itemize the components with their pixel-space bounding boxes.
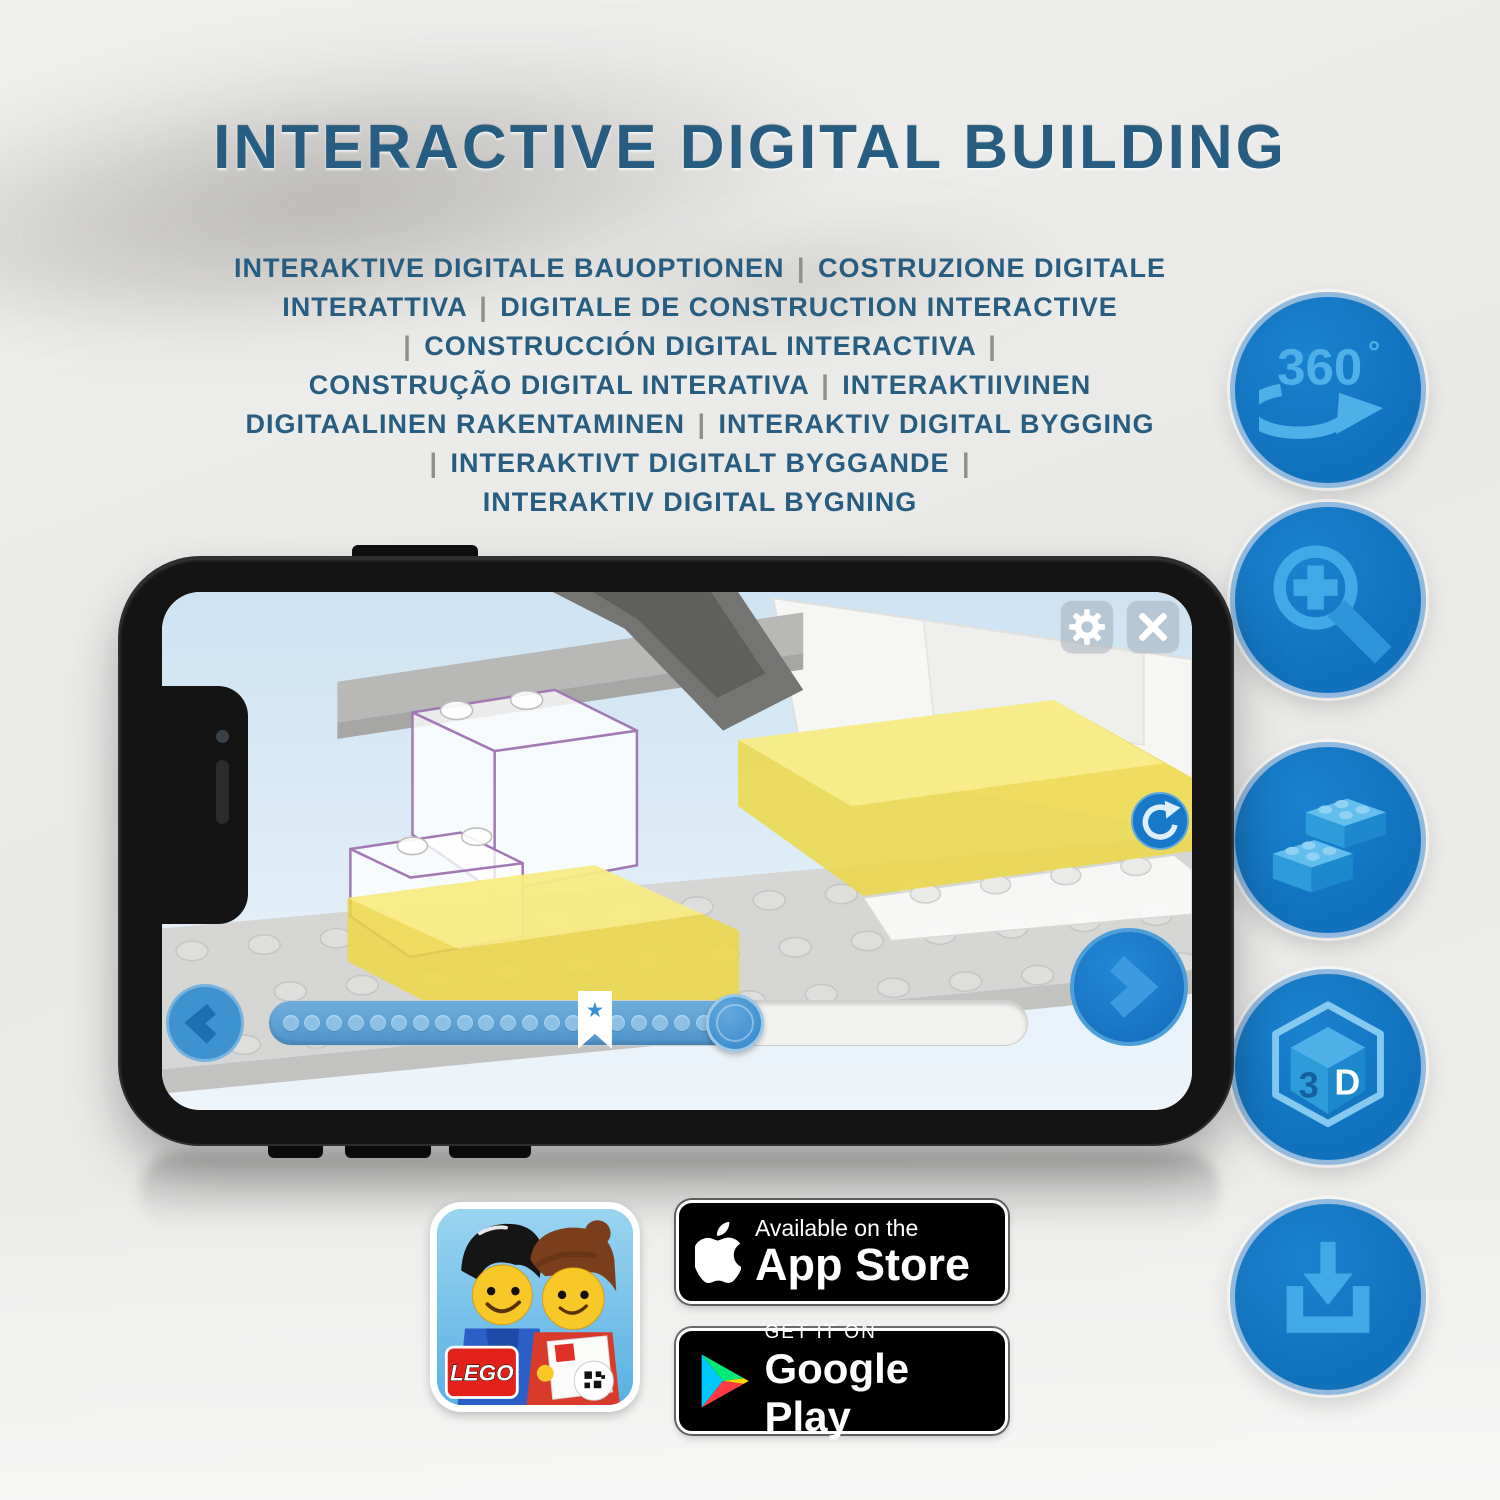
progress-dot [544,1015,560,1031]
progress-dot [652,1015,668,1031]
feature-bricks [1230,742,1426,938]
progress-dot [457,1015,473,1031]
subtitle-line: INTERAKTIV DIGITAL BYGNING [150,483,1250,522]
zoom-in-icon [1259,531,1397,669]
feature-download [1230,1199,1426,1395]
camera-dot [216,730,229,743]
progress-dot [391,1015,407,1031]
svg-text:D: D [1334,1063,1360,1103]
progress-dot [522,1015,538,1031]
progress-dot [348,1015,364,1031]
download-icon [1259,1228,1397,1366]
subtitle-line: INTERAKTIVE DIGITALE BAUOPTIONEN | COSTR… [150,249,1250,288]
progress-dot [370,1015,386,1031]
progress-dot [478,1015,494,1031]
page-title: INTERACTIVE DIGITAL BUILDING [0,112,1500,183]
progress-dot [304,1015,320,1031]
google-play-name: Google Play [764,1345,1005,1441]
svg-text:3: 3 [1299,1065,1319,1105]
feature-zoom [1230,502,1426,698]
progress-dot [283,1015,299,1031]
subtitle-line: CONSTRUÇÃO DIGITAL INTERATIVA | INTERAKT… [150,366,1250,405]
progress-dot [326,1015,342,1031]
svg-text:°: ° [1368,336,1380,369]
phone-screen: ★ [162,592,1192,1110]
poster: INTERACTIVE DIGITAL BUILDING INTERAKTIVE… [0,0,1500,1500]
progress-dot [500,1015,516,1031]
phone-notch [162,686,248,924]
settings-button[interactable] [1060,600,1114,654]
close-icon [1131,605,1175,649]
brick-icon [1259,771,1397,909]
feature-360-rotation: 360 ° [1230,292,1426,488]
build-progress-bar[interactable]: ★ [268,1000,1028,1046]
lego-app-art: LEGO [437,1209,633,1405]
phone-mockup: ★ [118,556,1234,1146]
app-store-name: App Store [755,1241,970,1289]
rotate-view-button[interactable] [1131,792,1189,850]
previous-step-button[interactable] [166,984,244,1062]
app-store-tagline: Available on the [755,1215,970,1241]
svg-text:LEGO: LEGO [450,1361,514,1386]
progress-dot [674,1015,690,1031]
google-play-icon [695,1350,750,1412]
google-play-badge[interactable]: GET IT ON Google Play [676,1328,1008,1434]
apple-icon [695,1221,741,1283]
subtitle-line: | CONSTRUCCIÓN DIGITAL INTERACTIVA | [150,327,1250,366]
progress-dot [435,1015,451,1031]
subtitle-line: INTERATTIVA | DIGITALE DE CONSTRUCTION I… [150,288,1250,327]
progress-dot [413,1015,429,1031]
gear-icon [1065,605,1109,649]
lego-app-icon[interactable]: LEGO [430,1202,640,1412]
app-store-badge[interactable]: Available on the App Store [676,1200,1008,1304]
rotate-icon [1138,799,1182,843]
next-step-button[interactable] [1070,928,1188,1046]
google-play-tagline: GET IT ON [764,1321,1005,1345]
chevron-right-icon [1074,928,1184,1046]
speaker-slot [216,760,229,824]
subtitle-block: INTERAKTIVE DIGITALE BAUOPTIONEN | COSTR… [150,249,1250,522]
feature-3d-view: 3 D [1230,969,1426,1165]
subtitle-line: DIGITAALINEN RAKENTAMINEN | INTERAKTIV D… [150,405,1250,444]
3d-cube-icon: 3 D [1259,998,1397,1136]
360-rotation-icon: 360 ° [1259,321,1397,459]
progress-dot [631,1015,647,1031]
close-button[interactable] [1126,600,1180,654]
chevron-left-icon [169,984,241,1062]
subtitle-line: | INTERAKTIVT DIGITALT BYGGANDE | [150,444,1250,483]
progress-handle[interactable] [706,994,764,1052]
svg-text:360: 360 [1277,338,1362,395]
